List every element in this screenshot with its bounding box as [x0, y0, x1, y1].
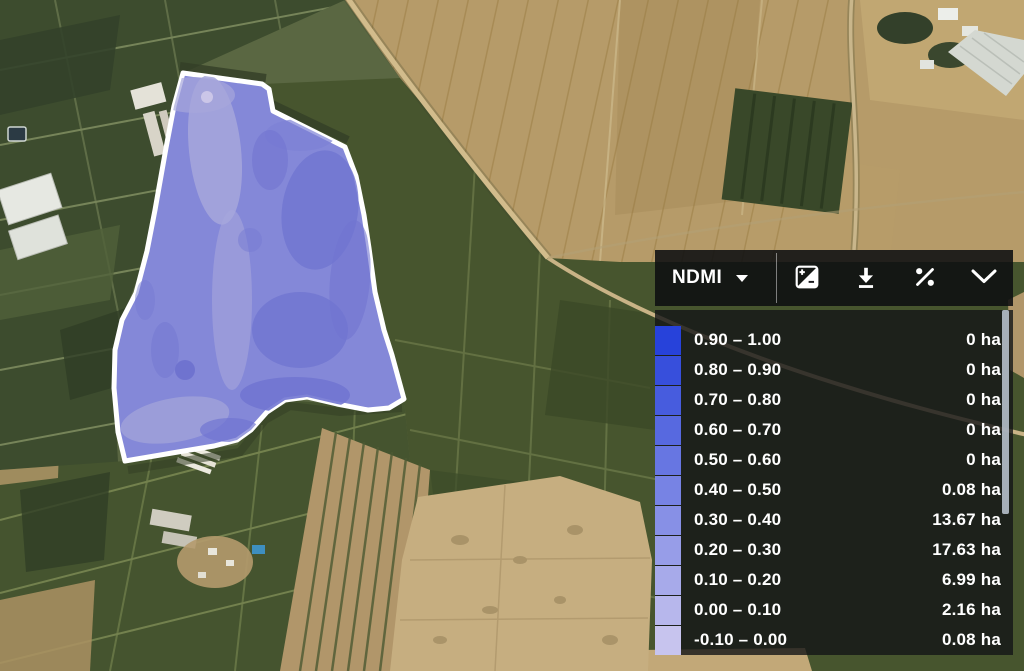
legend-range-label: -0.10 – 0.00 — [694, 630, 787, 650]
legend-row[interactable]: 0.50 – 0.60 0 ha — [655, 445, 1013, 475]
legend-swatch — [655, 326, 681, 355]
download-button[interactable] — [836, 250, 895, 306]
legend-row[interactable]: 0.10 – 0.20 6.99 ha — [655, 565, 1013, 595]
legend-row[interactable]: 0.40 – 0.50 0.08 ha — [655, 475, 1013, 505]
percent-icon — [913, 265, 937, 292]
legend-range-label: 0.00 – 0.10 — [694, 600, 781, 620]
legend-row[interactable]: 0.20 – 0.30 17.63 ha — [655, 535, 1013, 565]
legend-range-label: 0.10 – 0.20 — [694, 570, 781, 590]
dropdown-caret-icon — [736, 275, 748, 282]
layer-select[interactable]: NDMI — [655, 250, 776, 306]
legend-range-label: 0.70 – 0.80 — [694, 390, 781, 410]
ndmi-panel: NDMI — [655, 250, 1013, 655]
percent-button[interactable] — [895, 250, 954, 306]
legend-rows: 0.90 – 1.00 0 ha 0.80 – 0.90 0 ha 0.70 –… — [655, 325, 1013, 655]
legend-swatch — [655, 356, 681, 385]
collapse-button[interactable] — [954, 250, 1013, 306]
legend-row[interactable]: 0.80 – 0.90 0 ha — [655, 355, 1013, 385]
legend-swatch — [655, 536, 681, 565]
chevron-down-icon — [970, 269, 998, 288]
legend-swatch — [655, 596, 681, 625]
legend-area-value: 0.08 ha — [942, 630, 1013, 650]
legend-swatch — [655, 626, 681, 655]
legend-area-value: 17.63 ha — [932, 540, 1013, 560]
legend-swatch — [655, 416, 681, 445]
legend-area-value: 2.16 ha — [942, 600, 1013, 620]
legend-swatch — [655, 566, 681, 595]
legend-range-label: 0.60 – 0.70 — [694, 420, 781, 440]
legend-row[interactable]: 0.90 – 1.00 0 ha — [655, 325, 1013, 355]
legend-area-value: 13.67 ha — [932, 510, 1013, 530]
panel-toolbar — [777, 250, 1013, 306]
legend-scrollbar[interactable] — [1002, 310, 1009, 514]
ndmi-legend: 0.90 – 1.00 0 ha 0.80 – 0.90 0 ha 0.70 –… — [655, 310, 1013, 655]
legend-swatch — [655, 446, 681, 475]
legend-swatch — [655, 476, 681, 505]
legend-row[interactable]: -0.10 – 0.00 0.08 ha — [655, 625, 1013, 655]
legend-swatch — [655, 506, 681, 535]
legend-range-label: 0.40 – 0.50 — [694, 480, 781, 500]
legend-range-label: 0.50 – 0.60 — [694, 450, 781, 470]
legend-range-label: 0.90 – 1.00 — [694, 330, 781, 350]
legend-row[interactable]: 0.30 – 0.40 13.67 ha — [655, 505, 1013, 535]
contrast-button[interactable] — [777, 250, 836, 306]
map-screen: NDMI — [0, 0, 1024, 671]
legend-swatch — [655, 386, 681, 415]
exposure-icon — [794, 264, 820, 293]
legend-row[interactable]: 0.00 – 0.10 2.16 ha — [655, 595, 1013, 625]
download-icon — [853, 264, 879, 293]
legend-row[interactable]: 0.60 – 0.70 0 ha — [655, 415, 1013, 445]
legend-range-label: 0.80 – 0.90 — [694, 360, 781, 380]
legend-area-value: 6.99 ha — [942, 570, 1013, 590]
legend-range-label: 0.20 – 0.30 — [694, 540, 781, 560]
legend-row[interactable]: 0.70 – 0.80 0 ha — [655, 385, 1013, 415]
panel-header: NDMI — [655, 250, 1013, 306]
legend-range-label: 0.30 – 0.40 — [694, 510, 781, 530]
layer-label: NDMI — [672, 267, 722, 289]
